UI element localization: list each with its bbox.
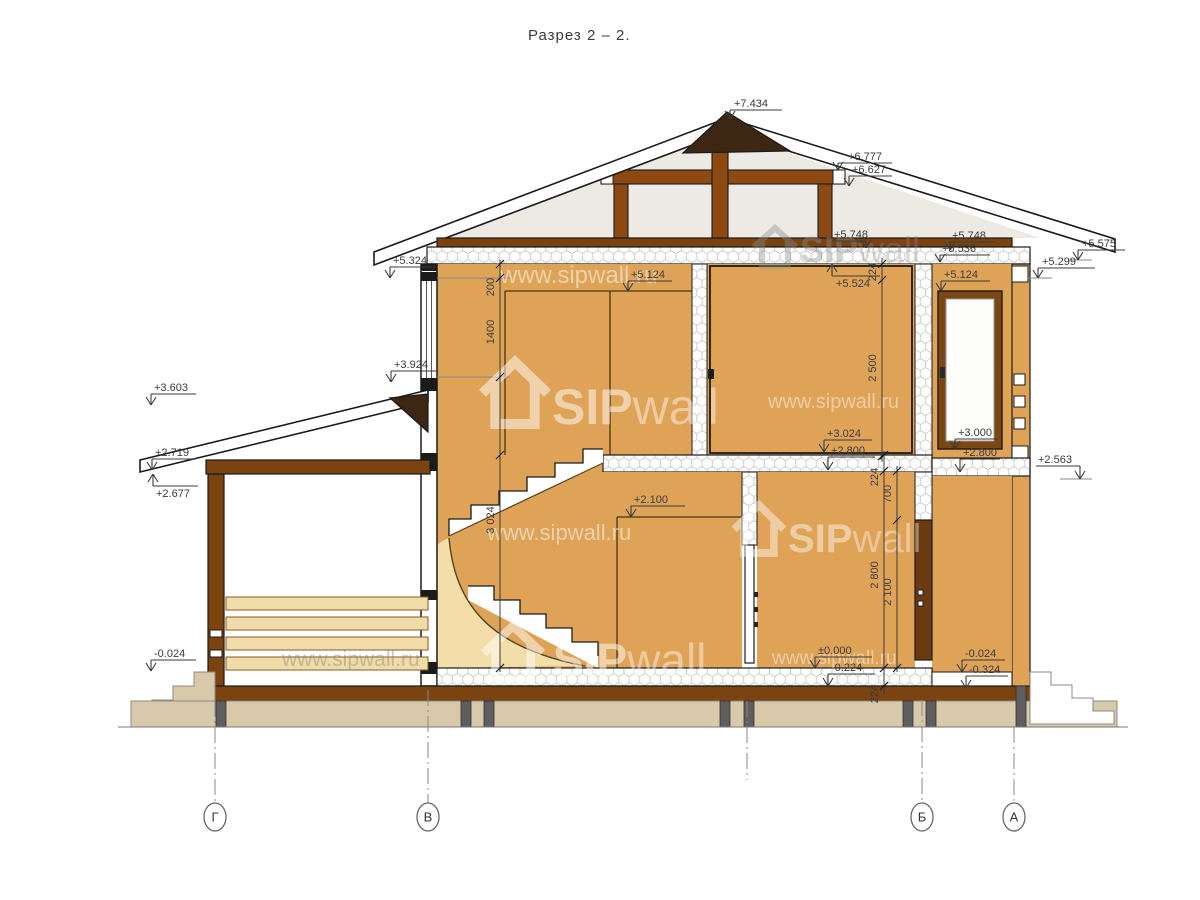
- elevation-value: +2.100: [634, 494, 668, 506]
- axis-b-wall1-sip: [915, 472, 932, 520]
- b-door-handle-1: [918, 590, 923, 595]
- elevation-value: -0.024: [154, 648, 185, 660]
- mark-arrow-icon: [151, 397, 156, 405]
- elevation-value: +5.748: [952, 230, 986, 242]
- mark-arrow-icon: [146, 397, 151, 405]
- wall-v-lintel: [421, 272, 437, 281]
- door-hinge-1: [754, 592, 758, 597]
- floor2-sip-panel: [603, 455, 932, 472]
- elevation-value: +5.524: [836, 278, 870, 290]
- b-door-handle-2: [918, 601, 923, 606]
- elevation-mark: +3.603: [146, 382, 196, 405]
- dimension-value: 3 024: [485, 506, 497, 534]
- mark-arrow-icon: [391, 374, 396, 382]
- elevation-value: +6.627: [852, 164, 886, 176]
- elevation-value: +2.800: [831, 445, 865, 457]
- porch-plank-1: [226, 597, 428, 610]
- drawing-title: Разрез 2 – 2.: [528, 27, 631, 44]
- elevation-value: +5.324: [393, 255, 427, 267]
- elevation-mark: -0.024: [146, 648, 196, 671]
- dimension-value: 224: [869, 468, 881, 486]
- elevation-value: +5.124: [631, 269, 665, 281]
- pier: [720, 701, 730, 727]
- mark-arrow-icon: [146, 663, 151, 671]
- mark-arrow-icon: [386, 374, 391, 382]
- partition1-door-leaf: [745, 545, 754, 663]
- elevation-value: +5.748: [834, 229, 868, 241]
- pier: [926, 701, 936, 727]
- dimension-value: 700: [882, 485, 894, 503]
- mark-arrow-icon: [153, 474, 158, 482]
- watermark-url: www.sipwall.ru: [486, 520, 631, 545]
- pier: [461, 701, 471, 727]
- right-entry-steps-outline: [1030, 672, 1114, 724]
- mark-arrow-icon: [1075, 471, 1080, 479]
- axis-label: Б: [918, 810, 927, 825]
- attic-post-center: [712, 152, 728, 238]
- elevation-mark: +2.563: [1036, 454, 1085, 479]
- axis-label: Г: [211, 810, 218, 825]
- pier: [216, 701, 226, 727]
- wall-a-top-block: [1012, 266, 1028, 282]
- porch-beam: [206, 460, 430, 474]
- elevation-value: +2.719: [155, 447, 189, 459]
- mark-arrow-icon: [1078, 252, 1083, 260]
- base-beam-band: [206, 686, 1030, 701]
- dimension-value: 200: [485, 278, 497, 296]
- elevation-value: +3.024: [827, 428, 861, 440]
- porch: [140, 390, 430, 686]
- porch-plank-2: [226, 617, 428, 630]
- room1-bay-wall-panel: [932, 476, 1012, 672]
- elevation-value: +5.299: [1042, 256, 1076, 268]
- axis-label: А: [1010, 810, 1019, 825]
- elevation-value: -0.024: [965, 648, 996, 660]
- watermark: www.sipwall.ru: [486, 520, 631, 545]
- window-handle-icon: [940, 367, 945, 378]
- mark-arrow-icon: [148, 474, 153, 482]
- balcony-window-glass: [946, 299, 994, 441]
- axis-a-wall-panel: [1012, 264, 1030, 690]
- axis-a-wall: [1012, 264, 1030, 690]
- elevation-value: +5.575: [1082, 238, 1116, 250]
- door-hinge-3: [754, 622, 758, 627]
- watermark-brand: SIPwall: [553, 634, 706, 686]
- drawing-canvas: Разрез 2 – 2.: [0, 0, 1200, 900]
- dimension-value: 224: [869, 685, 881, 703]
- watermark-url: www.sipwall.ru: [281, 648, 420, 671]
- attic-post-left: [614, 184, 628, 238]
- elevation-value: +3.603: [154, 382, 188, 394]
- elevation-mark: +5.299: [1033, 256, 1095, 278]
- pier: [744, 701, 754, 727]
- elevation-value: -0.224: [831, 662, 862, 674]
- elevation-value: +6.777: [848, 151, 882, 163]
- elevation-value: +2.800: [963, 447, 997, 459]
- attic-beam-end-block-right: [833, 170, 845, 184]
- elevation-value: +5.124: [944, 269, 978, 281]
- pier: [1016, 686, 1026, 727]
- column-tie-2: [210, 650, 222, 657]
- door-handle-icon: [708, 369, 714, 379]
- attic-floor-board: [437, 238, 1012, 247]
- watermark: www.sipwall.ru: [281, 648, 420, 671]
- mark-arrow-icon: [1033, 270, 1038, 278]
- elevation-value: +3.000: [958, 427, 992, 439]
- mark-arrow-icon: [1080, 471, 1085, 479]
- elevation-value: +2.563: [1038, 454, 1072, 466]
- elevation-value: +3.924: [394, 359, 428, 371]
- elevation-value: ±0.000: [818, 645, 852, 657]
- axis-b-wall-sip: [915, 264, 932, 455]
- dimension-value: 2 800: [869, 561, 881, 589]
- door-hinge-2: [754, 607, 758, 612]
- elevation-value: +7.434: [734, 98, 768, 110]
- wall-v-sill: [421, 378, 437, 391]
- mark-arrow-icon: [390, 270, 395, 278]
- axis-label: В: [424, 810, 433, 825]
- watermark: www.sipwall.ru: [767, 391, 899, 413]
- mark-arrow-icon: [151, 663, 156, 671]
- pier: [484, 701, 494, 727]
- mark-arrow-icon: [1038, 270, 1043, 278]
- elevation-value: -0.324: [969, 664, 1000, 676]
- wall-a-tie-2: [1014, 396, 1025, 407]
- dimension-value: 2 100: [882, 578, 894, 606]
- wall-a-tie-3: [1014, 418, 1025, 429]
- dimension-value: 2 500: [867, 354, 879, 382]
- column-tie-1: [210, 630, 222, 637]
- elevation-mark: +2.719: [147, 447, 196, 470]
- dimension-value: 1400: [485, 320, 497, 344]
- elevation-value: +5.536: [942, 243, 976, 255]
- axis-А: А: [1003, 727, 1025, 831]
- watermark-brand: SIPwall: [552, 379, 719, 435]
- mark-arrow-icon: [385, 270, 390, 278]
- porch-roof-cap: [390, 394, 428, 432]
- foundation-strip: [131, 701, 1117, 727]
- elevation-mark: +2.677: [148, 474, 198, 500]
- watermark-brand: SIPwall: [788, 517, 921, 561]
- section-drawing-sheet: Разрез 2 – 2.: [0, 0, 1200, 900]
- wall-a-band-block: [1012, 446, 1028, 459]
- wall-a-tie-1: [1014, 374, 1025, 385]
- room2-right-wall-panel: [707, 264, 915, 455]
- watermark-url: www.sipwall.ru: [767, 391, 899, 413]
- floor2-bay-sip-panel: [932, 458, 1030, 476]
- elevation-value: +2.677: [156, 488, 190, 500]
- pier: [903, 701, 913, 727]
